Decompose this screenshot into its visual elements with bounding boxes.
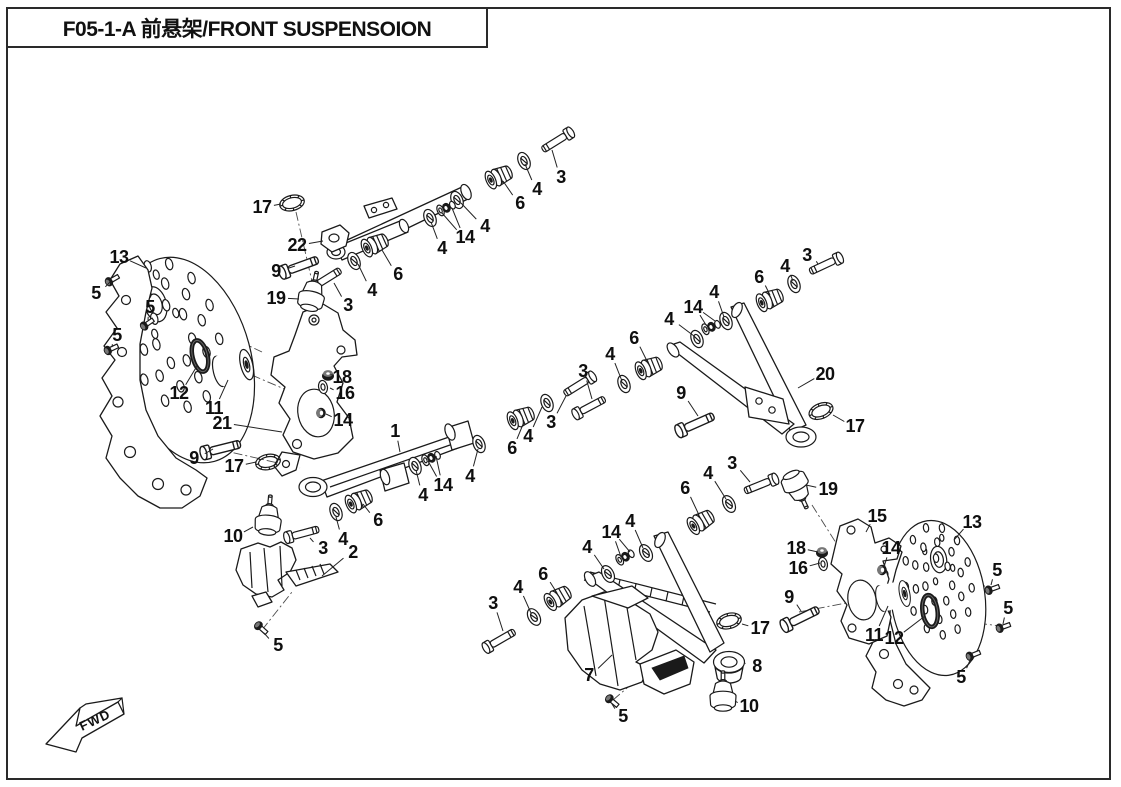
- callout-number: 8: [752, 656, 762, 676]
- callout-number: 1: [390, 421, 400, 441]
- washer-part: [785, 274, 802, 295]
- callout-number: 13: [109, 247, 129, 267]
- callout-number: 5: [112, 325, 122, 345]
- callout-number: 6: [373, 510, 383, 530]
- callout-5: 5: [145, 297, 155, 320]
- callout-4: 4: [358, 264, 377, 300]
- callout-8: 8: [745, 656, 762, 676]
- parts-catalog-page: F05-1-A 前悬架/FRONT SUSPENSOION: [0, 0, 1121, 787]
- callout-number: 4: [523, 426, 533, 446]
- callout-17: 17: [224, 456, 256, 476]
- callout-3: 3: [334, 283, 353, 315]
- callout-6: 6: [680, 478, 699, 515]
- callout-number: 9: [189, 448, 199, 468]
- leader-line: [358, 264, 366, 281]
- washer-part: [470, 434, 487, 455]
- bolt-part: [778, 603, 821, 633]
- nut14-part: [316, 408, 325, 418]
- callout-number: 6: [629, 328, 639, 348]
- callout-5: 5: [112, 325, 122, 347]
- callout-4: 4: [336, 517, 348, 549]
- bolt-part: [539, 126, 576, 155]
- leader-line: [288, 298, 299, 299]
- nut18-part: [816, 547, 827, 557]
- callout-number: 16: [335, 383, 355, 403]
- callout-4: 4: [605, 344, 622, 381]
- leader-line: [334, 283, 342, 297]
- callout-number: 4: [703, 463, 713, 483]
- callout-number: 18: [786, 538, 806, 558]
- callout-number: 5: [91, 283, 101, 303]
- leader-line: [497, 612, 503, 631]
- leader-line: [703, 312, 715, 321]
- callout-4: 4: [709, 282, 724, 317]
- washer-part: [327, 502, 344, 523]
- leader-line: [1003, 618, 1004, 625]
- nut14-part: [877, 565, 886, 575]
- callout-6: 6: [629, 328, 648, 363]
- balljoint-part: [254, 494, 283, 536]
- leader-line: [635, 530, 643, 548]
- callout-number: 2: [348, 542, 358, 562]
- callout-number: 14: [455, 227, 475, 247]
- callout-number: 5: [1003, 598, 1013, 618]
- callout-number: 6: [680, 478, 690, 498]
- callout-number: 4: [465, 466, 475, 486]
- callout-number: 11: [865, 625, 884, 645]
- callout-number: 19: [818, 479, 838, 499]
- callout-number: 5: [956, 667, 966, 687]
- callout-number: 19: [266, 288, 286, 308]
- callout-number: 14: [333, 410, 353, 430]
- callout-number: 3: [343, 295, 353, 315]
- callout-3: 3: [488, 593, 503, 631]
- bushing-part: [343, 486, 375, 514]
- callout-13: 13: [954, 512, 982, 540]
- bolt-part: [807, 251, 845, 277]
- bolt5-part: [984, 582, 1001, 595]
- callout-number: 13: [962, 512, 982, 532]
- leader-line: [797, 605, 801, 611]
- leader-line: [619, 539, 630, 552]
- arm-eye-8: [714, 652, 745, 684]
- bolt-part: [282, 523, 320, 544]
- callout-1: 1: [390, 421, 400, 452]
- callout-number: 4: [780, 256, 790, 276]
- callout-number: 17: [845, 416, 865, 436]
- leader-line: [244, 527, 253, 532]
- leader-line: [679, 325, 694, 336]
- leader-line: [461, 203, 476, 219]
- callout-4: 4: [465, 449, 478, 486]
- callout-number: 5: [618, 706, 628, 726]
- callout-number: 5: [992, 560, 1002, 580]
- callout-14: 14: [442, 208, 475, 247]
- washer-part: [615, 374, 632, 395]
- callout-4: 4: [525, 164, 542, 199]
- callout-4: 4: [513, 577, 531, 613]
- callout-number: 10: [223, 526, 243, 546]
- callout-number: 4: [338, 529, 348, 549]
- callout-20: 20: [798, 364, 835, 388]
- bushing-part: [754, 286, 786, 313]
- callout-number: 7: [584, 665, 594, 685]
- leader-line: [523, 596, 531, 613]
- callout-number: 9: [676, 383, 686, 403]
- washer-part: [720, 493, 738, 514]
- oring17-part: [807, 399, 836, 422]
- oring17-part: [278, 193, 306, 214]
- washer-part: [525, 606, 544, 627]
- callout-3: 3: [727, 453, 750, 482]
- leader-line: [742, 624, 748, 626]
- bolt-part: [743, 472, 781, 497]
- callout-9: 9: [676, 383, 698, 416]
- leader-line: [382, 250, 391, 266]
- callout-4: 4: [625, 511, 643, 548]
- callout-number: 6: [515, 193, 525, 213]
- callout-number: 4: [625, 511, 635, 531]
- callout-number: 3: [318, 538, 328, 558]
- callout-number: 9: [271, 261, 281, 281]
- callout-number: 15: [867, 506, 887, 526]
- callout-number: 3: [488, 593, 498, 613]
- callout-6: 6: [538, 564, 557, 593]
- callout-number: 21: [212, 413, 232, 433]
- callout-number: 4: [664, 309, 674, 329]
- bushing-part: [633, 354, 665, 381]
- bushing-part: [483, 162, 515, 190]
- bolt-part: [673, 410, 716, 439]
- callout-number: 17: [750, 618, 770, 638]
- axis-line: [812, 505, 838, 546]
- leader-line: [452, 208, 460, 228]
- bolt-part: [570, 394, 607, 421]
- callout-number: 14: [433, 475, 453, 495]
- callout-5: 5: [264, 633, 283, 655]
- callout-number: 10: [739, 696, 759, 716]
- bolt-part: [481, 626, 518, 654]
- callout-number: 4: [709, 282, 719, 302]
- callout-number: 3: [578, 361, 588, 381]
- callout-number: 14: [881, 538, 901, 558]
- leader-line: [503, 181, 513, 195]
- callout-4: 4: [780, 256, 793, 281]
- callout-number: 3: [802, 245, 812, 265]
- callout-number: 9: [784, 587, 794, 607]
- leader-line: [816, 261, 818, 264]
- callout-18: 18: [786, 538, 818, 558]
- callout-number: 3: [727, 453, 737, 473]
- oring17-part: [715, 610, 743, 631]
- callout-number: 3: [546, 412, 556, 432]
- callout-3: 3: [552, 150, 566, 187]
- arm-eye: [299, 478, 327, 497]
- callout-4: 4: [703, 463, 726, 499]
- callout-17: 17: [252, 197, 281, 217]
- arm-eye: [786, 427, 816, 447]
- leader-line: [398, 441, 400, 452]
- callout-number: 12: [884, 628, 904, 648]
- exploded-diagram: 1355512112191718161417229193464144643346…: [0, 0, 1121, 787]
- callout-number: 4: [582, 537, 592, 557]
- stack14-part: [614, 548, 636, 567]
- leader-line: [798, 379, 814, 388]
- callout-number: 14: [683, 297, 703, 317]
- callout-5: 5: [1003, 598, 1013, 624]
- leader-line: [808, 550, 818, 552]
- callout-number: 4: [605, 344, 615, 364]
- bolt5-part: [253, 620, 270, 636]
- callout-16: 16: [788, 558, 820, 578]
- callout-number: 5: [273, 635, 283, 655]
- callout-22: 22: [287, 235, 323, 255]
- leader-line: [594, 555, 604, 569]
- callout-6: 6: [754, 267, 770, 295]
- callout-5: 5: [991, 560, 1002, 585]
- bushing-part: [542, 583, 575, 613]
- leader-line: [740, 470, 750, 482]
- bushing-part: [685, 507, 718, 537]
- callout-5: 5: [91, 282, 110, 303]
- callout-10: 10: [735, 696, 759, 716]
- callout-number: 3: [556, 167, 566, 187]
- leader-line: [833, 415, 844, 422]
- callout-number: 6: [393, 264, 403, 284]
- callout-6: 6: [503, 181, 525, 213]
- callout-number: 12: [169, 383, 189, 403]
- callout-3: 3: [802, 245, 818, 265]
- callout-19: 19: [266, 288, 299, 308]
- callout-number: 14: [601, 522, 621, 542]
- callout-number: 4: [418, 485, 428, 505]
- leader-line: [991, 579, 993, 585]
- callout-number: 4: [480, 216, 490, 236]
- callout-17: 17: [742, 618, 770, 638]
- callout-number: 6: [538, 564, 548, 584]
- callout-19: 19: [806, 479, 838, 499]
- fwd-arrow: FWD: [46, 698, 124, 752]
- callout-number: 6: [754, 267, 764, 287]
- callout-number: 4: [367, 280, 377, 300]
- leader-line: [246, 462, 256, 464]
- balljoint-part: [778, 466, 819, 514]
- leader-line: [557, 396, 566, 413]
- leader-line: [442, 213, 457, 230]
- callout-6: 6: [363, 504, 383, 530]
- callout-9: 9: [784, 587, 801, 611]
- leader-line: [310, 538, 314, 542]
- callout-number: 22: [287, 235, 307, 255]
- callout-4: 4: [431, 222, 447, 258]
- callout-3: 3: [310, 538, 328, 558]
- callout-4: 4: [416, 470, 428, 505]
- callout-number: 20: [815, 364, 835, 384]
- callout-5: 5: [612, 704, 628, 726]
- leader-line: [473, 449, 478, 466]
- leader-line: [688, 401, 698, 416]
- washer16-part: [818, 557, 829, 572]
- washer-part: [637, 542, 655, 563]
- callout-10: 10: [223, 526, 253, 546]
- callout-17: 17: [833, 415, 865, 436]
- callout-number: 4: [437, 238, 447, 258]
- leader-line: [715, 481, 726, 499]
- callout-number: 4: [513, 577, 523, 597]
- callout-number: 17: [252, 197, 272, 217]
- leader-line: [552, 150, 557, 168]
- callout-number: 16: [788, 558, 808, 578]
- callout-number: 17: [224, 456, 244, 476]
- callout-6: 6: [382, 250, 403, 284]
- callout-number: 4: [532, 179, 542, 199]
- callout-number: 5: [145, 297, 155, 317]
- washer-part: [515, 151, 533, 172]
- callout-number: 6: [507, 438, 517, 458]
- leader-line: [691, 497, 700, 515]
